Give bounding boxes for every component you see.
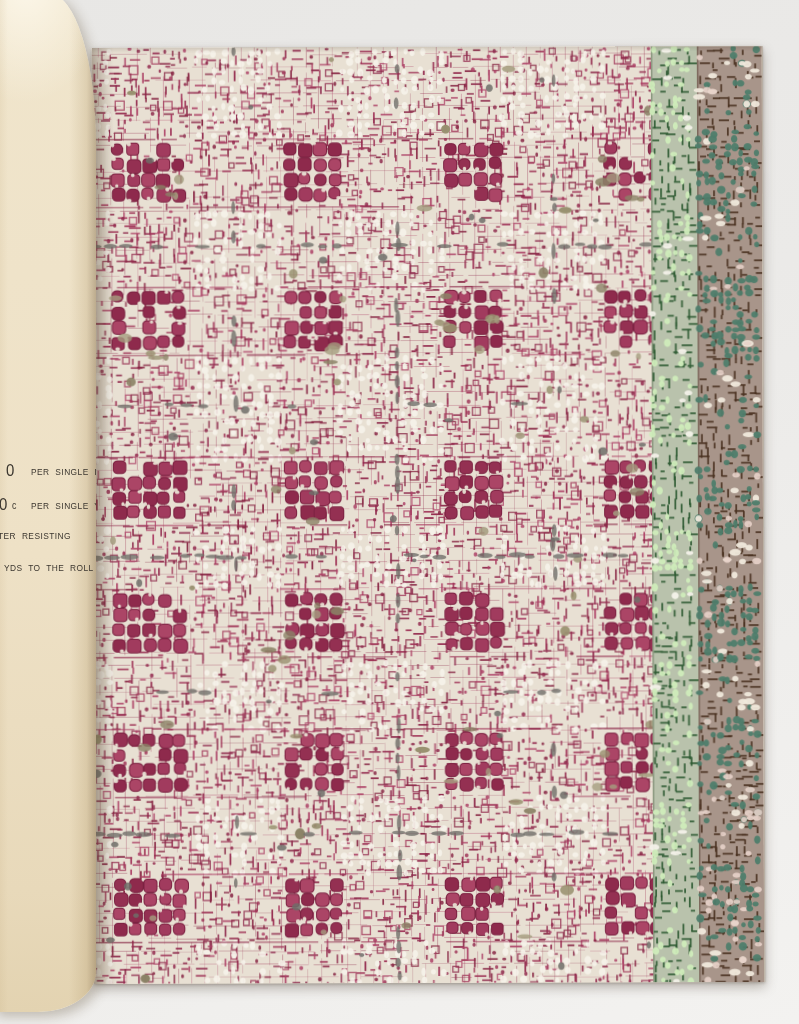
wallpaper-pattern-canvas (92, 46, 764, 984)
per-single-yard-label: PER SINGLE YARD (31, 500, 96, 511)
price-per-yard-value: 0 (0, 495, 7, 515)
cents-suffix: c (12, 500, 16, 511)
yards-per-roll-label: YDS TO THE ROLL (4, 562, 94, 573)
water-resisting-label: TER RESISTING (0, 530, 71, 541)
sample-book-page: 0 PER SINGLE ROLL 0 c PER SINGLE YARD TE… (0, 0, 96, 1012)
per-single-roll-label: PER SINGLE ROLL (31, 466, 96, 477)
wallpaper-sample (92, 46, 765, 984)
photograph: 0 PER SINGLE ROLL 0 c PER SINGLE YARD TE… (0, 0, 799, 1024)
price-per-roll-value: 0 (6, 461, 14, 481)
